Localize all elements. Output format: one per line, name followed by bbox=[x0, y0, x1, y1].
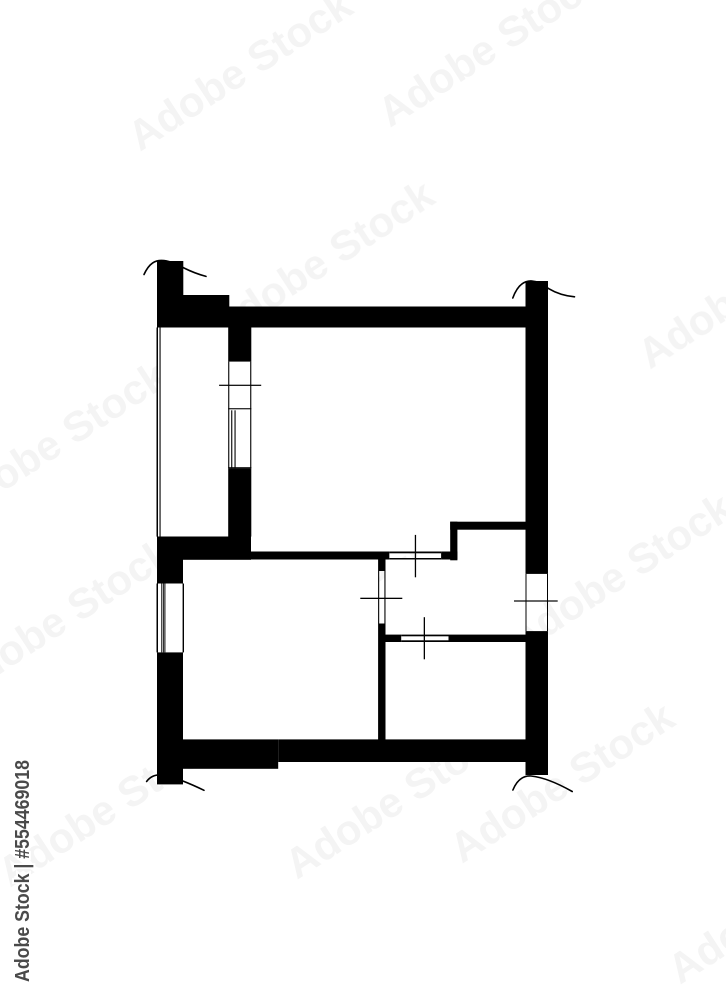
svg-text:Adobe Stock | #554469018: Adobe Stock | #554469018 bbox=[12, 760, 34, 982]
